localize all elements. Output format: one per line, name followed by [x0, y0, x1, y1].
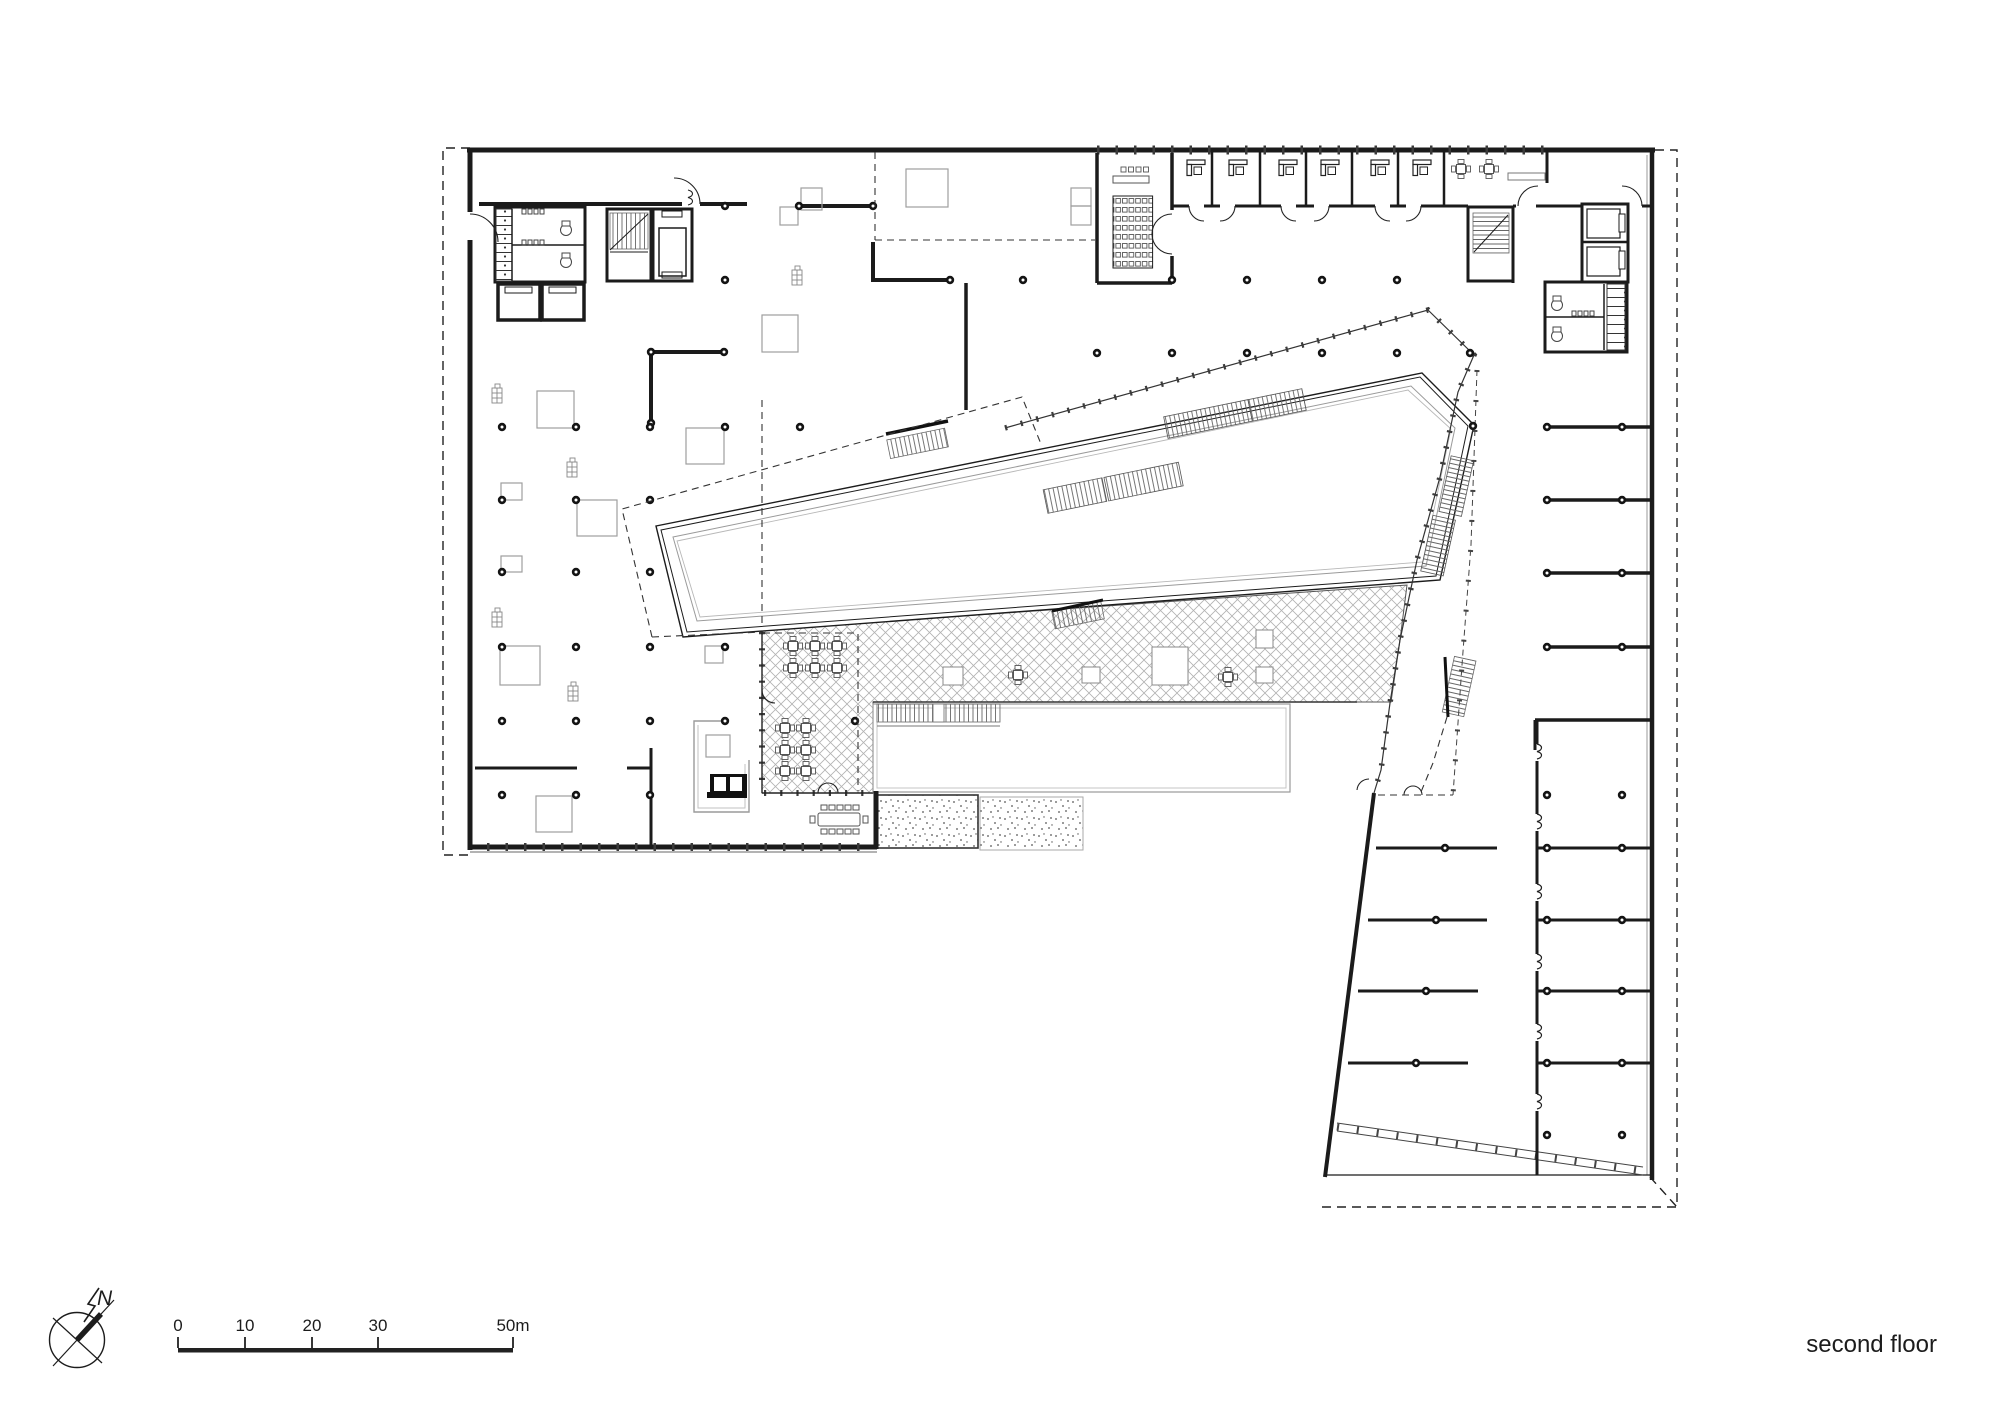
scale-bar: 0 10 20 30 50m [173, 1316, 529, 1353]
scale-tick-20: 20 [303, 1316, 322, 1335]
scale-tick-10: 10 [236, 1316, 255, 1335]
meeting-table [810, 805, 868, 834]
core-northwest [495, 207, 692, 320]
scale-tick-30: 30 [369, 1316, 388, 1335]
scale-tick-50: 50m [496, 1316, 529, 1335]
south-east-wing [1325, 720, 1652, 1177]
void-over-foyer [873, 702, 1357, 850]
scale-tick-0: 0 [173, 1316, 182, 1335]
office-row [1172, 152, 1547, 206]
east-bays [1545, 427, 1652, 647]
sheet-title: second floor [1806, 1331, 1937, 1358]
core-northeast [1468, 204, 1652, 352]
north-label: N [97, 1287, 113, 1310]
floor-plan-sheet: N 0 10 20 30 50m second floor [0, 0, 2000, 1413]
shelving [492, 266, 802, 701]
floor-plan-drawing: N 0 10 20 30 50m second floor [0, 0, 2000, 1413]
